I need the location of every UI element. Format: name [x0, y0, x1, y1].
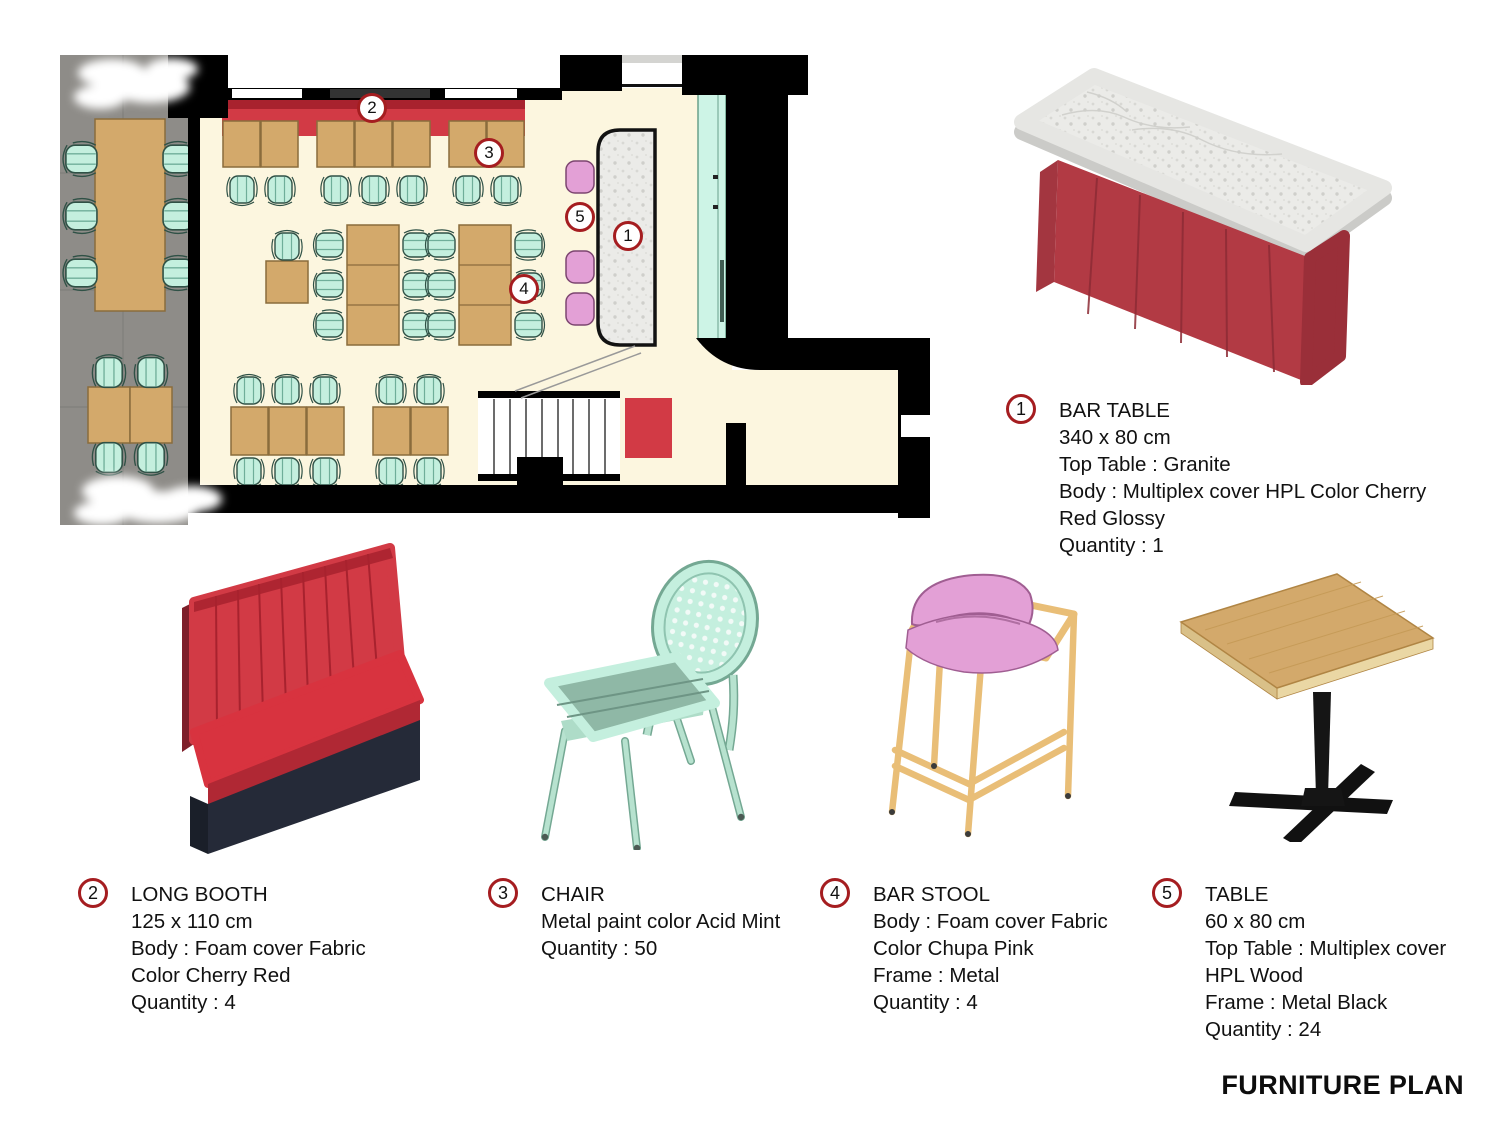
legend-item-name: CHAIR [541, 881, 780, 908]
legend-item-table: 5 TABLE 60 x 80 cmTop Table : Multiplex … [1152, 881, 1446, 1043]
legend-item-long-booth: 2 LONG BOOTH 125 x 110 cmBody : Foam cov… [78, 881, 366, 1016]
legend-item-bar-stool: 4 BAR STOOL Body : Foam cover FabricColo… [820, 881, 1108, 1016]
legend-line: Red Glossy [1059, 505, 1426, 532]
plan-marker-1: 1 [613, 221, 643, 251]
legend-item-bar-table: 1 BAR TABLE 340 x 80 cmTop Table : Grani… [1006, 397, 1426, 559]
legend-marker-4: 4 [820, 878, 850, 908]
legend-line: 60 x 80 cm [1205, 908, 1446, 935]
legend-line: Body : Multiplex cover HPL Color Cherry [1059, 478, 1426, 505]
plan-marker-5: 5 [565, 202, 595, 232]
long-booth-render [90, 532, 460, 857]
legend-item-name: TABLE [1205, 881, 1446, 908]
legend-marker-5: 5 [1152, 878, 1182, 908]
legend-line: HPL Wood [1205, 962, 1446, 989]
legend-line: Quantity : 24 [1205, 1016, 1446, 1043]
entrance-door [622, 55, 682, 87]
legend-marker-1: 1 [1006, 394, 1036, 424]
table-pedestal [1313, 692, 1331, 797]
legend-line: Metal paint color Acid Mint [541, 908, 780, 935]
legend-line: Body : Foam cover Fabric [873, 908, 1108, 935]
table-top [1181, 574, 1433, 688]
legend-item-chair: 3 CHAIR Metal paint color Acid MintQuant… [488, 881, 780, 962]
plan-marker-4: 4 [509, 274, 539, 304]
bar-table-render [992, 30, 1402, 385]
legend-line: Top Table : Granite [1059, 451, 1426, 478]
legend-item-specs: 125 x 110 cmBody : Foam cover FabricColo… [131, 908, 366, 1016]
legend-line: Color Chupa Pink [873, 935, 1108, 962]
legend-line: Frame : Metal Black [1205, 989, 1446, 1016]
legend-item-name: LONG BOOTH [131, 881, 366, 908]
legend-marker-2: 2 [78, 878, 108, 908]
stool-seat-cushion [906, 614, 1058, 673]
legend-line: 125 x 110 cm [131, 908, 366, 935]
legend-line: 340 x 80 cm [1059, 424, 1426, 451]
legend-marker-3: 3 [488, 878, 518, 908]
legend-item-name: BAR TABLE [1059, 397, 1426, 424]
legend-item-name: BAR STOOL [873, 881, 1108, 908]
back-bar-counter [698, 91, 726, 339]
legend-line: Quantity : 4 [131, 989, 366, 1016]
table-render [1165, 552, 1455, 842]
legend-line: Quantity : 4 [873, 989, 1108, 1016]
plan-marker-2: 2 [357, 93, 387, 123]
corridor-door-gap [901, 415, 930, 437]
legend-line: Quantity : 50 [541, 935, 780, 962]
legend-item-specs: 340 x 80 cmTop Table : GraniteBody : Mul… [1059, 424, 1426, 559]
legend-line: Top Table : Multiplex cover [1205, 935, 1446, 962]
legend-line: Frame : Metal [873, 962, 1108, 989]
legend-line: Color Cherry Red [131, 962, 366, 989]
floor-plan [60, 55, 930, 525]
legend-item-specs: 60 x 80 cmTop Table : Multiplex coverHPL… [1205, 908, 1446, 1043]
legend-item-specs: Metal paint color Acid MintQuantity : 50 [541, 908, 780, 962]
page-title: FURNITURE PLAN [1221, 1070, 1464, 1101]
furniture-plan-page: 1 2 3 4 5 [0, 0, 1500, 1125]
plan-marker-3: 3 [474, 138, 504, 168]
red-service-block [625, 398, 672, 458]
chair-render [505, 545, 795, 850]
legend-item-specs: Body : Foam cover FabricColor Chupa Pink… [873, 908, 1108, 1016]
legend-line: Quantity : 1 [1059, 532, 1426, 559]
bar-stool-render [848, 540, 1103, 858]
legend-line: Body : Foam cover Fabric [131, 935, 366, 962]
